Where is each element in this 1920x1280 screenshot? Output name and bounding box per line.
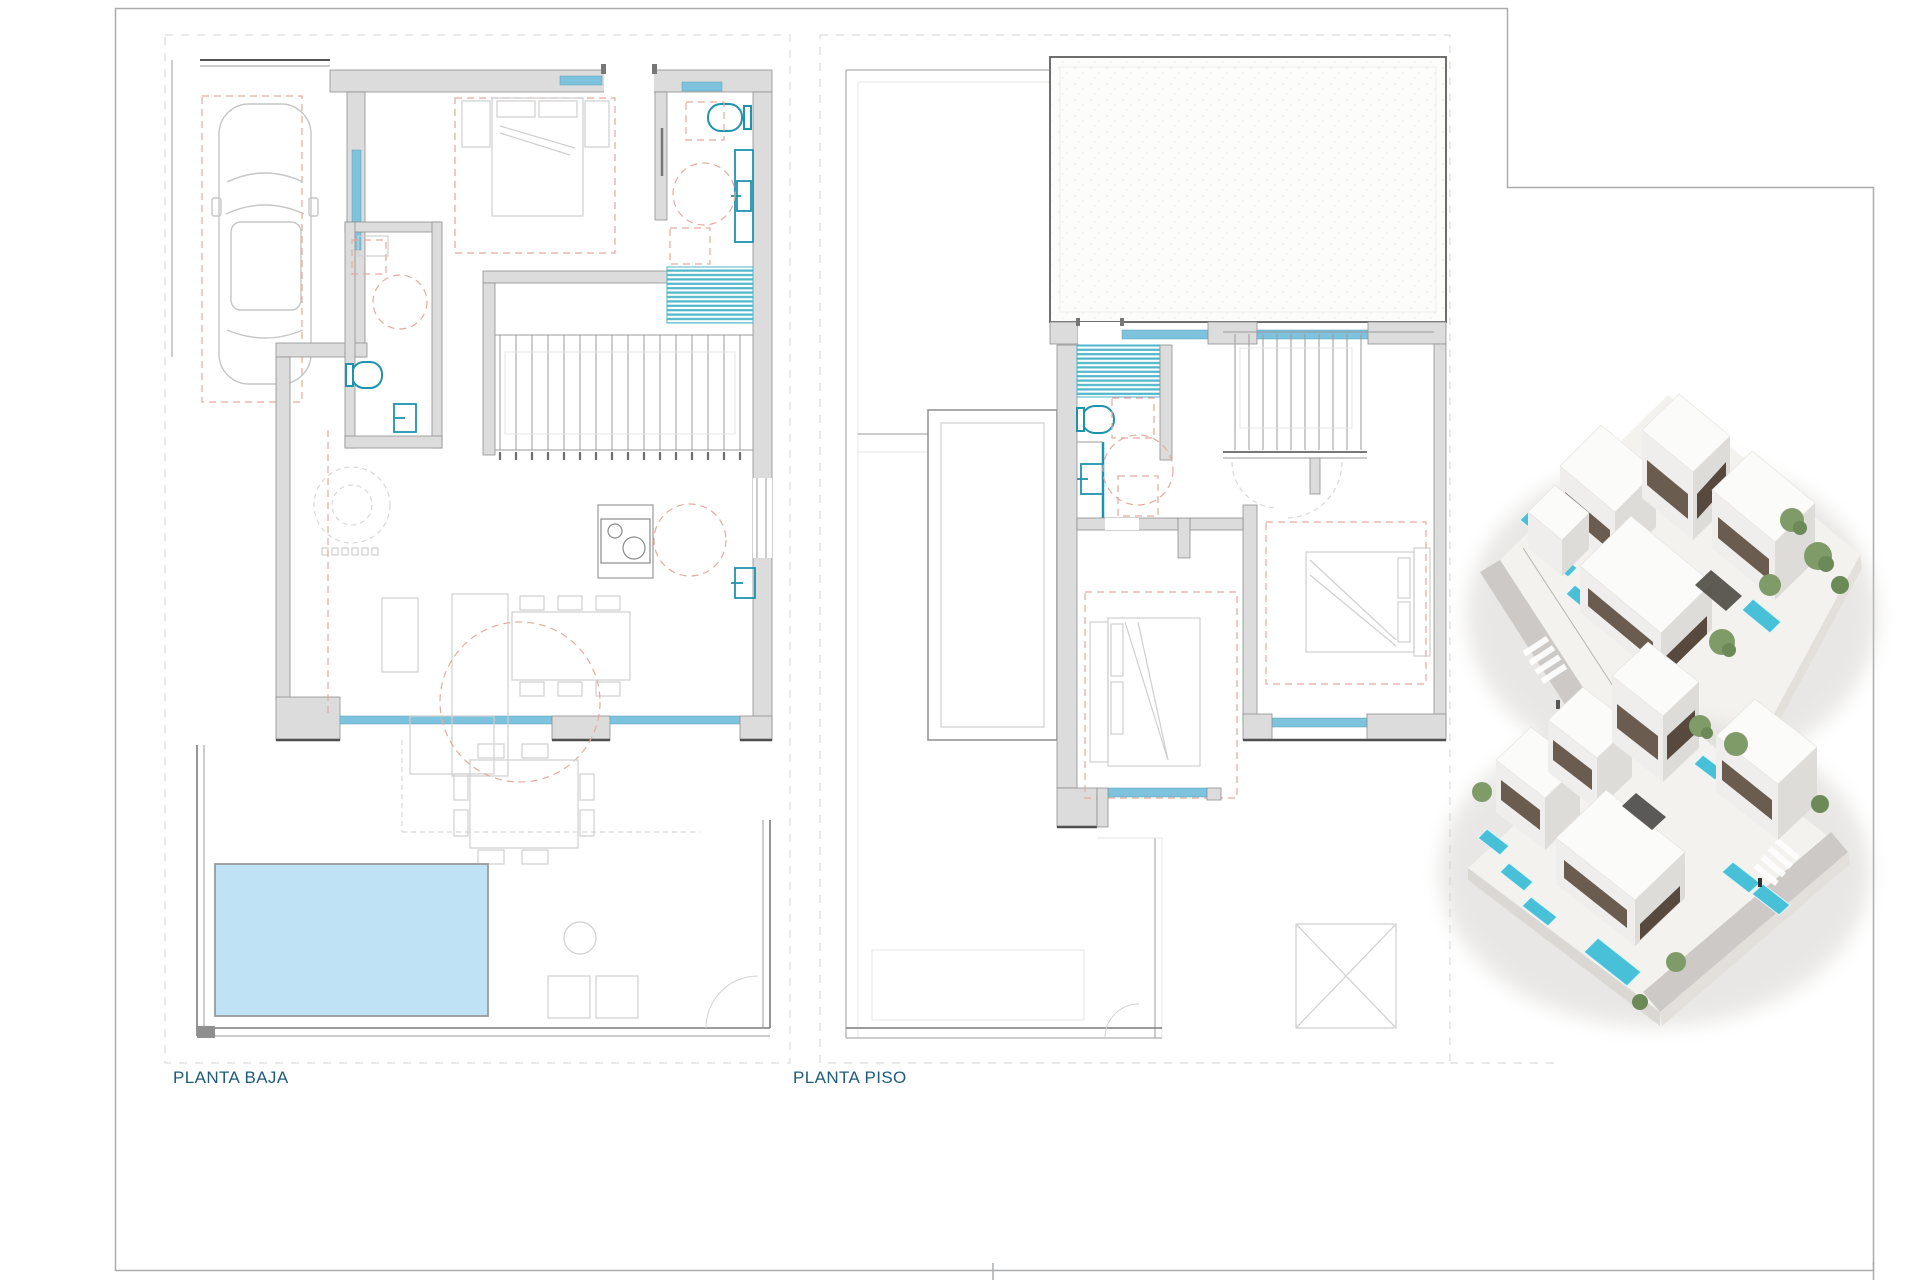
- ff-stairs: [1223, 332, 1434, 518]
- sofa: [452, 594, 508, 776]
- gf-bedroom: [455, 98, 615, 253]
- ff-terrace-outline: [846, 70, 1057, 1038]
- toilet-icon: [1077, 406, 1114, 433]
- swimming-pool: [215, 864, 488, 1016]
- window: [1272, 718, 1367, 727]
- ff-lower-terrace: [846, 838, 1396, 1038]
- ff-roof: [1050, 57, 1446, 322]
- kitchen-island: [598, 505, 653, 578]
- ff-bathroom: [1077, 345, 1190, 558]
- label-planta-piso: PLANTA PISO: [793, 1068, 907, 1088]
- label-planta-baja: PLANTA BAJA: [173, 1068, 289, 1088]
- person: [1556, 700, 1560, 709]
- tree-symbol: [314, 467, 390, 543]
- coffee-table: [382, 598, 418, 672]
- void-x-box: [1296, 924, 1396, 1028]
- window: [560, 76, 602, 85]
- ff-bedroom-left: [1085, 592, 1237, 827]
- gf-bathroom: [667, 102, 753, 323]
- window: [1108, 788, 1207, 797]
- shower-hatch: [667, 267, 753, 323]
- ff-bedroom-right: [1243, 522, 1446, 740]
- person: [1758, 878, 1762, 887]
- toilet-icon: [346, 362, 382, 388]
- sliding-door-glass: [340, 716, 552, 724]
- bed: [1108, 618, 1200, 766]
- sliding-door-glass: [610, 716, 740, 724]
- gf-living-room: [314, 430, 755, 782]
- gf-terrace: [215, 740, 700, 1018]
- patio-void: [928, 410, 1057, 740]
- toilet-icon: [708, 104, 751, 131]
- shower-hatch: [1077, 345, 1160, 397]
- outdoor-table: [470, 760, 578, 848]
- window: [1257, 330, 1368, 339]
- gf-stairs: [495, 335, 753, 460]
- plan-ground-floor: [165, 35, 790, 1063]
- sheet-drawing: [0, 0, 1920, 1280]
- gf-walls: [276, 64, 772, 740]
- plan-sheet: PLANTA BAJA PLANTA PISO: [0, 0, 1920, 1280]
- bed: [492, 98, 583, 216]
- window: [682, 82, 722, 91]
- window: [1122, 330, 1208, 339]
